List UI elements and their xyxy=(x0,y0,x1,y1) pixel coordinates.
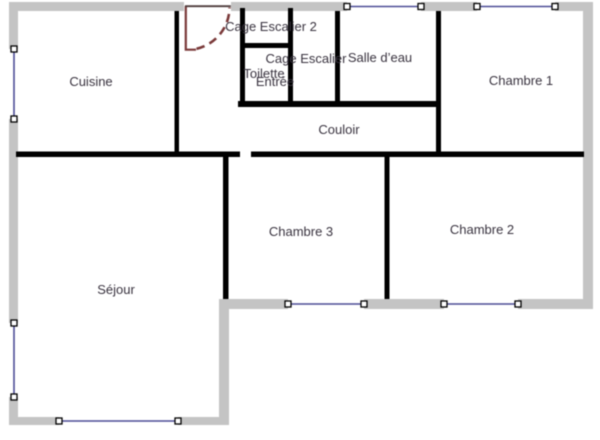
svg-text:Entrée: Entrée xyxy=(256,74,294,89)
svg-text:Séjour: Séjour xyxy=(97,282,135,297)
svg-text:Salle d’eau: Salle d’eau xyxy=(348,50,412,65)
svg-text:Couloir: Couloir xyxy=(318,122,360,137)
svg-text:Cuisine: Cuisine xyxy=(69,74,112,89)
svg-text:Cage Escalier: Cage Escalier xyxy=(266,51,348,66)
svg-text:Chambre 1: Chambre 1 xyxy=(489,73,553,88)
svg-text:Chambre 2: Chambre 2 xyxy=(450,222,514,237)
svg-text:Cage Escalier 2: Cage Escalier 2 xyxy=(225,19,317,34)
svg-text:Chambre 3: Chambre 3 xyxy=(269,224,333,239)
